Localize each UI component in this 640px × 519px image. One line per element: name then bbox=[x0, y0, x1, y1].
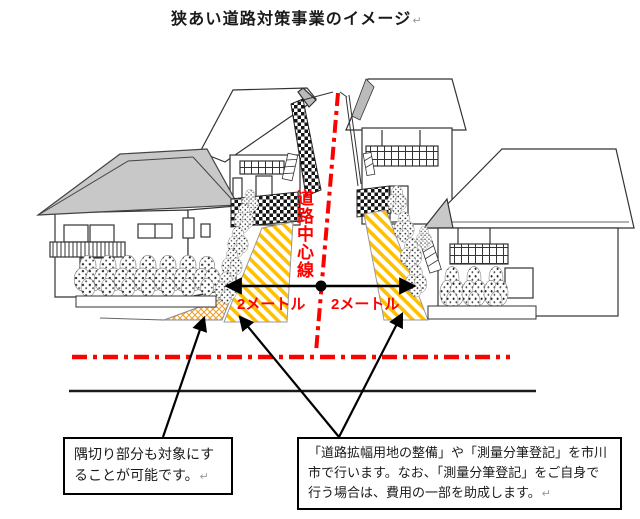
hedge-base-wall bbox=[76, 296, 216, 307]
callout-strip-left bbox=[240, 317, 339, 437]
middle-house-window bbox=[233, 178, 242, 200]
setback-width-label-left: 2メートル bbox=[237, 293, 305, 314]
right-house-far-balcony bbox=[366, 146, 438, 166]
left-house-roof bbox=[38, 149, 238, 215]
return-mark: ↵ bbox=[412, 15, 422, 27]
near-house-base bbox=[428, 306, 536, 319]
return-mark: ↵ bbox=[200, 471, 209, 483]
city-work-note: 「道路拡幅用地の整備」や「測量分筆登記」を市川 市で行います。なお、「測量分筆登… bbox=[297, 437, 622, 510]
narrow-road-project-diagram: 狭あい道路対策事業のイメージ↵ 道路中心線 2メートル 2メートル 隅切り部分も… bbox=[0, 0, 640, 519]
right-house-near-roof bbox=[424, 149, 634, 228]
note-line: 市で行います。なお、「測量分筆登記」をご自身で bbox=[308, 463, 611, 483]
note-line: 隅切り部分も対象にす bbox=[74, 444, 222, 465]
left-house-window-side2 bbox=[201, 224, 210, 237]
note-line: ることが可能です。↵ bbox=[74, 465, 222, 488]
return-mark: ↵ bbox=[542, 488, 551, 500]
left-house-window-side1 bbox=[183, 218, 194, 238]
left-house-deck-rail-1 bbox=[64, 225, 88, 242]
setback-width-label-right: 2メートル bbox=[331, 293, 399, 314]
road-center-line-label: 道路中心線 bbox=[295, 189, 312, 279]
near-house-bushes bbox=[440, 267, 508, 312]
callout-strip-right bbox=[339, 314, 402, 437]
center-point-dot bbox=[316, 281, 327, 292]
callout-lines bbox=[163, 314, 402, 437]
right-house-near-alcove bbox=[505, 268, 533, 298]
note-line: 行う場合は、費用の一部を助成します。↵ bbox=[308, 483, 611, 504]
left-house-deck-rail-2 bbox=[90, 225, 114, 242]
ground-line-left bbox=[100, 318, 164, 320]
middle-house-balcony bbox=[240, 161, 284, 174]
callout-corner-cut bbox=[163, 318, 204, 437]
right-house-near-planter bbox=[450, 244, 508, 264]
corner-cut-note: 隅切り部分も対象にす ることが可能です。↵ bbox=[63, 437, 233, 495]
left-house-balcony bbox=[50, 242, 125, 257]
note-line: 「道路拡幅用地の整備」や「測量分筆登記」を市川 bbox=[308, 443, 611, 463]
page-title-text: 狭あい道路対策事業のイメージ bbox=[171, 11, 411, 28]
page-title: 狭あい道路対策事業のイメージ↵ bbox=[171, 5, 423, 29]
